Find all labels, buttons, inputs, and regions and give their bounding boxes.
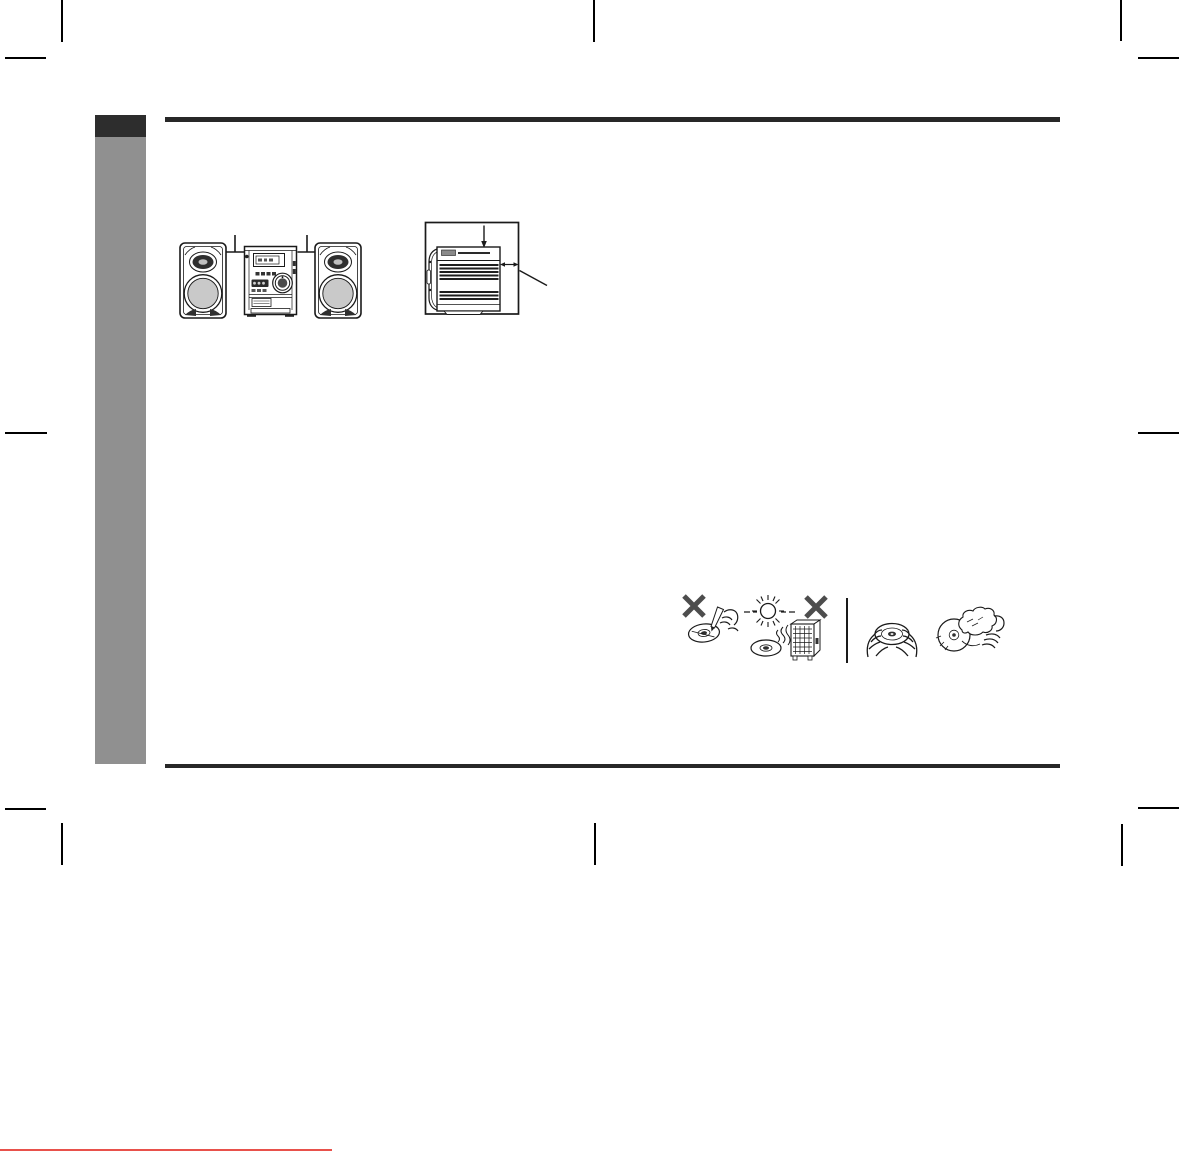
crop-mark-middle-right-horizontal: [1138, 432, 1179, 434]
spacing-tick-right: [298, 235, 317, 252]
disc-icon: [751, 640, 781, 656]
heater-icon: [777, 620, 821, 660]
crop-mark-top-left-horizontal: [5, 57, 46, 59]
x-mark-icon: [684, 596, 704, 616]
cd-tray: [251, 309, 290, 314]
crop-mark-bottom-right-horizontal: [1138, 807, 1179, 809]
down-arrow-icon: [481, 226, 487, 249]
crop-mark-middle-left-horizontal: [5, 432, 47, 434]
crop-mark-top-center-vertical: [593, 0, 595, 42]
crop-mark-bottom-center-vertical: [594, 823, 596, 865]
unit-side-icon: [427, 247, 500, 315]
chapter-tab: [95, 115, 146, 137]
speaker-right-icon: [315, 243, 361, 318]
header-rule: [165, 117, 1060, 122]
x-mark-icon: [806, 597, 826, 617]
sidebar-band: [95, 137, 146, 764]
speaker-left-icon: [180, 243, 226, 318]
manual-page: [0, 0, 1179, 1152]
crop-mark-top-right-horizontal: [1138, 57, 1179, 59]
crop-mark-top-left-vertical: [61, 0, 63, 42]
pen-in-hand-icon: [711, 607, 738, 632]
side-view-illustration: [418, 212, 548, 318]
main-unit-icon: [245, 247, 297, 317]
power-button-icon: [245, 255, 249, 259]
volume-knob-icon: [273, 273, 293, 293]
crop-mark-bottom-left-vertical: [61, 823, 63, 865]
footer-rule: [165, 764, 1060, 768]
crop-mark-bottom-right-vertical: [1121, 824, 1123, 866]
sun-icon: [744, 595, 795, 627]
no-sunlight-or-heater-icon: [744, 595, 826, 660]
disc-care-illustration: [662, 578, 1007, 673]
leader-line: [520, 271, 548, 286]
crop-mark-bottom-left-horizontal: [5, 808, 46, 810]
front-view-illustration: [168, 225, 368, 330]
red-underline-artifact: [0, 1149, 332, 1151]
hold-disc-by-edges-icon: [867, 624, 917, 658]
no-writing-on-disc-icon: [684, 596, 738, 644]
gap-arrow-icon: [500, 262, 519, 266]
cloth-icon: [959, 607, 997, 635]
wipe-disc-with-cloth-icon: [936, 607, 1004, 651]
crop-mark-top-right-vertical: [1120, 0, 1122, 41]
cassette-door: [252, 299, 271, 307]
spacing-tick-left: [226, 235, 245, 252]
